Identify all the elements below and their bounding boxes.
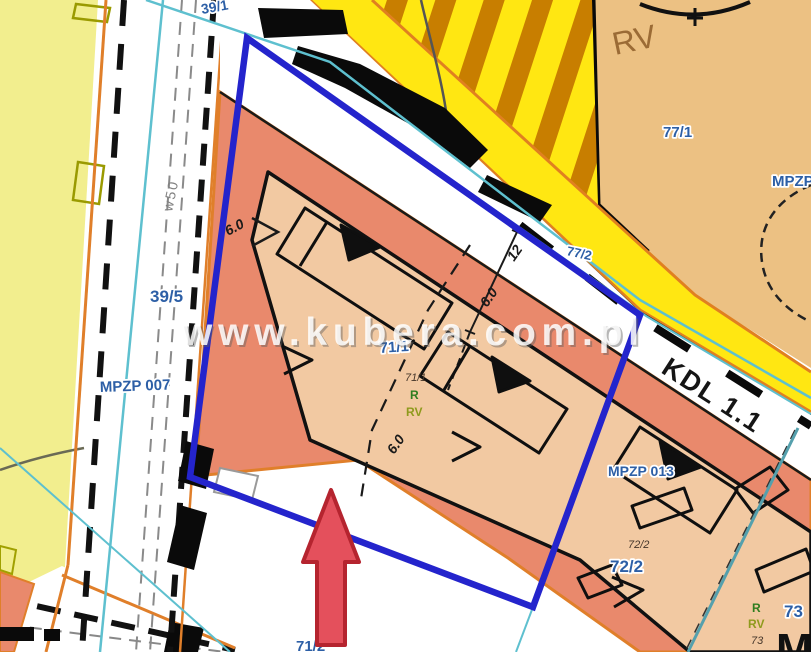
parcel-label-72-2-small: 72/2 [628,539,649,551]
plan-label-mpzp-007: MPZP 007 [100,377,171,396]
soil-label-r-center: R [410,388,419,402]
soil-label-rv-right: RV [748,617,764,631]
basemap-building-2 [44,629,60,641]
zone-label-m: M [776,625,811,652]
plan-label-mpzp-right: MPZP [772,173,811,190]
parcel-label-73: 73 [784,602,803,621]
soil-label-r-right: R [752,601,761,615]
parcel-label-77-1: 77/1 [663,124,692,141]
basemap-building-4 [258,8,348,38]
parcel-label-71-1-small: 71/1 [405,372,426,384]
basemap-building-1 [0,627,34,641]
map-viewport[interactable]: 39/1 39/5 MPZP 007 w50 RV 77/1 MPZP 77/2… [0,0,811,652]
parcel-label-72-2: 72/2 [610,557,643,576]
parcel-label-39-5: 39/5 [150,287,183,306]
parcel-label-73-small: 73 [751,635,764,647]
plan-label-mpzp-013: MPZP 013 [608,463,674,479]
zoning-map-canvas[interactable]: 39/1 39/5 MPZP 007 w50 RV 77/1 MPZP 77/2… [0,0,811,652]
soil-label-rv-center: RV [406,405,422,419]
